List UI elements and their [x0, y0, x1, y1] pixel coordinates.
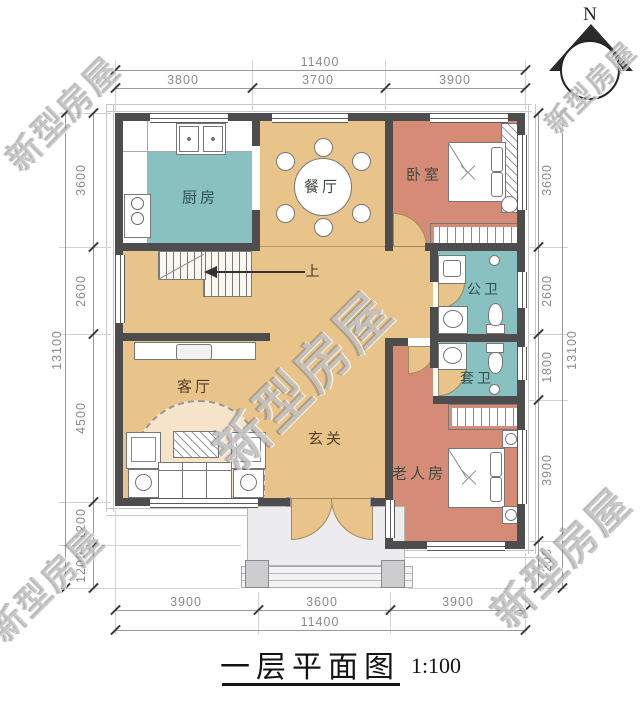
dim-bottom-seg-2: 3600 [306, 595, 338, 609]
porch-column-left [245, 560, 269, 588]
dim-line-left-overall [65, 113, 66, 588]
dim-right-seg-3: 1800 [540, 351, 554, 383]
armchair-left [126, 432, 161, 469]
wall-bath-left-b [430, 307, 438, 334]
bedroom-window-right [517, 135, 527, 210]
plan-title: 一层平面图 [220, 642, 400, 686]
dining-window [272, 113, 348, 123]
ext-line [59, 334, 111, 335]
dim-top-seg-2: 3700 [302, 73, 334, 87]
wall-ensuite-bottom [433, 396, 517, 404]
dim-right-overall: 13100 [565, 330, 579, 370]
washer-drum [443, 260, 461, 277]
wall-kitchen-dining-upper [252, 121, 260, 146]
armchair-seat [131, 437, 156, 462]
wall-dining-bedroom [385, 113, 393, 251]
tv-set [176, 344, 212, 360]
room-label-kitchen: 厨房 [182, 187, 218, 208]
ext-line [258, 592, 259, 634]
dim-line-top-overall [115, 70, 525, 71]
nightstand-lamp [505, 509, 517, 521]
elder-window-right [517, 430, 527, 504]
sink-bowl [443, 310, 463, 328]
dining-hall-boundary-line [260, 246, 385, 247]
bed-quilt-decor [461, 469, 477, 485]
wall-kitchen-bottom [115, 243, 260, 251]
dim-top-seg-1: 3800 [167, 73, 199, 87]
side-table-lamp [135, 474, 152, 491]
public-bath-window [517, 272, 527, 308]
dim-left-overall: 13100 [50, 330, 64, 370]
wall-bath-left-c [430, 342, 438, 368]
room-label-living: 客厅 [177, 376, 213, 397]
sink-basin-left [179, 126, 199, 152]
eaves-line-top [106, 104, 532, 112]
ext-line [59, 502, 111, 503]
dining-chair [276, 204, 295, 223]
bed-pillow [490, 452, 502, 477]
dim-left-seg-2: 2600 [74, 275, 88, 307]
living-window-bottom [150, 498, 258, 508]
sink-bowl [443, 347, 462, 364]
bed-quilt-decor [460, 164, 476, 180]
ext-line [59, 247, 111, 248]
dim-left-seg-3: 4500 [74, 402, 88, 434]
eaves-line-bottom-left [106, 508, 254, 516]
sofa-back-line [159, 470, 231, 471]
title-underline [222, 683, 400, 686]
ext-line [390, 592, 391, 634]
dim-top-seg-3: 3900 [439, 73, 471, 87]
eaves-line-left [106, 104, 114, 512]
stove-burner [131, 212, 144, 225]
floor-plan-canvas: 上 [0, 0, 640, 701]
room-label-bedroom: 卧室 [406, 164, 442, 185]
stairs-direction-line [215, 271, 305, 273]
ext-line [59, 588, 239, 589]
ceiling-lamp [489, 255, 500, 266]
dim-bottom-overall: 11400 [301, 615, 340, 629]
ensuite-bath-window [517, 347, 527, 380]
stair-hall-window [115, 255, 125, 323]
wall-bath-left-a [430, 251, 438, 282]
dim-top-overall: 11400 [301, 55, 340, 69]
eaves-line-bottom-right [398, 550, 534, 558]
side-table-left [128, 469, 159, 498]
wall-living-top [115, 333, 270, 341]
dining-chair [352, 204, 371, 223]
ensuite-bath-sink [438, 343, 467, 370]
elder-wardrobe [448, 404, 525, 430]
ext-line [115, 510, 116, 634]
dim-bottom-seg-3: 3900 [442, 595, 474, 609]
wall-kitchen-dining-lower [252, 210, 260, 251]
elder-window-bottom [427, 541, 505, 551]
bed-pillow [491, 147, 503, 172]
kitchen-sink [176, 123, 226, 155]
room-label-foyer: 玄关 [308, 428, 344, 449]
bedroom-stool [501, 196, 518, 213]
dim-right-seg-2: 2600 [540, 275, 554, 307]
washing-machine [438, 255, 466, 284]
dim-line-bottom-overall [115, 630, 525, 631]
dining-chair [314, 218, 333, 237]
room-label-public-bath: 公卫 [467, 279, 501, 299]
dim-left-seg-1: 3600 [74, 164, 88, 196]
dim-line-left-segments [93, 113, 94, 588]
stairs-up-label: 上 [306, 261, 321, 281]
north-label: N [583, 4, 597, 26]
dining-chair [352, 152, 371, 171]
nightstand-lamp [505, 433, 517, 445]
plan-scale: 1:100 [411, 653, 461, 679]
wall-foyer-bottom-right [371, 498, 385, 506]
dining-chair [276, 152, 295, 171]
dim-line-bottom-segments [115, 610, 525, 611]
room-label-dining: 餐厅 [304, 176, 340, 197]
dining-chair [314, 138, 333, 157]
stairs-direction-arrow [204, 266, 217, 278]
bed-pillow [490, 477, 502, 502]
bedroom-window-top [430, 113, 508, 123]
dim-right-seg-1: 3600 [540, 164, 554, 196]
kitchen-stove [124, 194, 151, 238]
wall-bedroom-bottom [425, 243, 525, 251]
dim-bottom-seg-1: 3900 [170, 595, 202, 609]
kitchen-window [150, 113, 228, 123]
public-bath-sink [438, 306, 468, 334]
porch-column-right [381, 560, 405, 588]
wall-bath-divider [430, 334, 517, 342]
dim-right-seg-4: 3900 [540, 454, 554, 486]
elder-window-porch [385, 500, 395, 538]
bed-pillow [491, 172, 503, 197]
room-label-elder: 老人房 [392, 463, 446, 484]
public-bath-toilet-bowl [488, 303, 503, 326]
dim-line-right-segments [538, 113, 539, 588]
eaves-line-right [528, 104, 536, 554]
sofa [158, 462, 232, 500]
stove-burner [131, 197, 144, 210]
sink-basin-right [203, 126, 223, 152]
dim-line-top-segments [115, 88, 525, 89]
room-label-ensuite-bath: 套卫 [460, 368, 494, 388]
